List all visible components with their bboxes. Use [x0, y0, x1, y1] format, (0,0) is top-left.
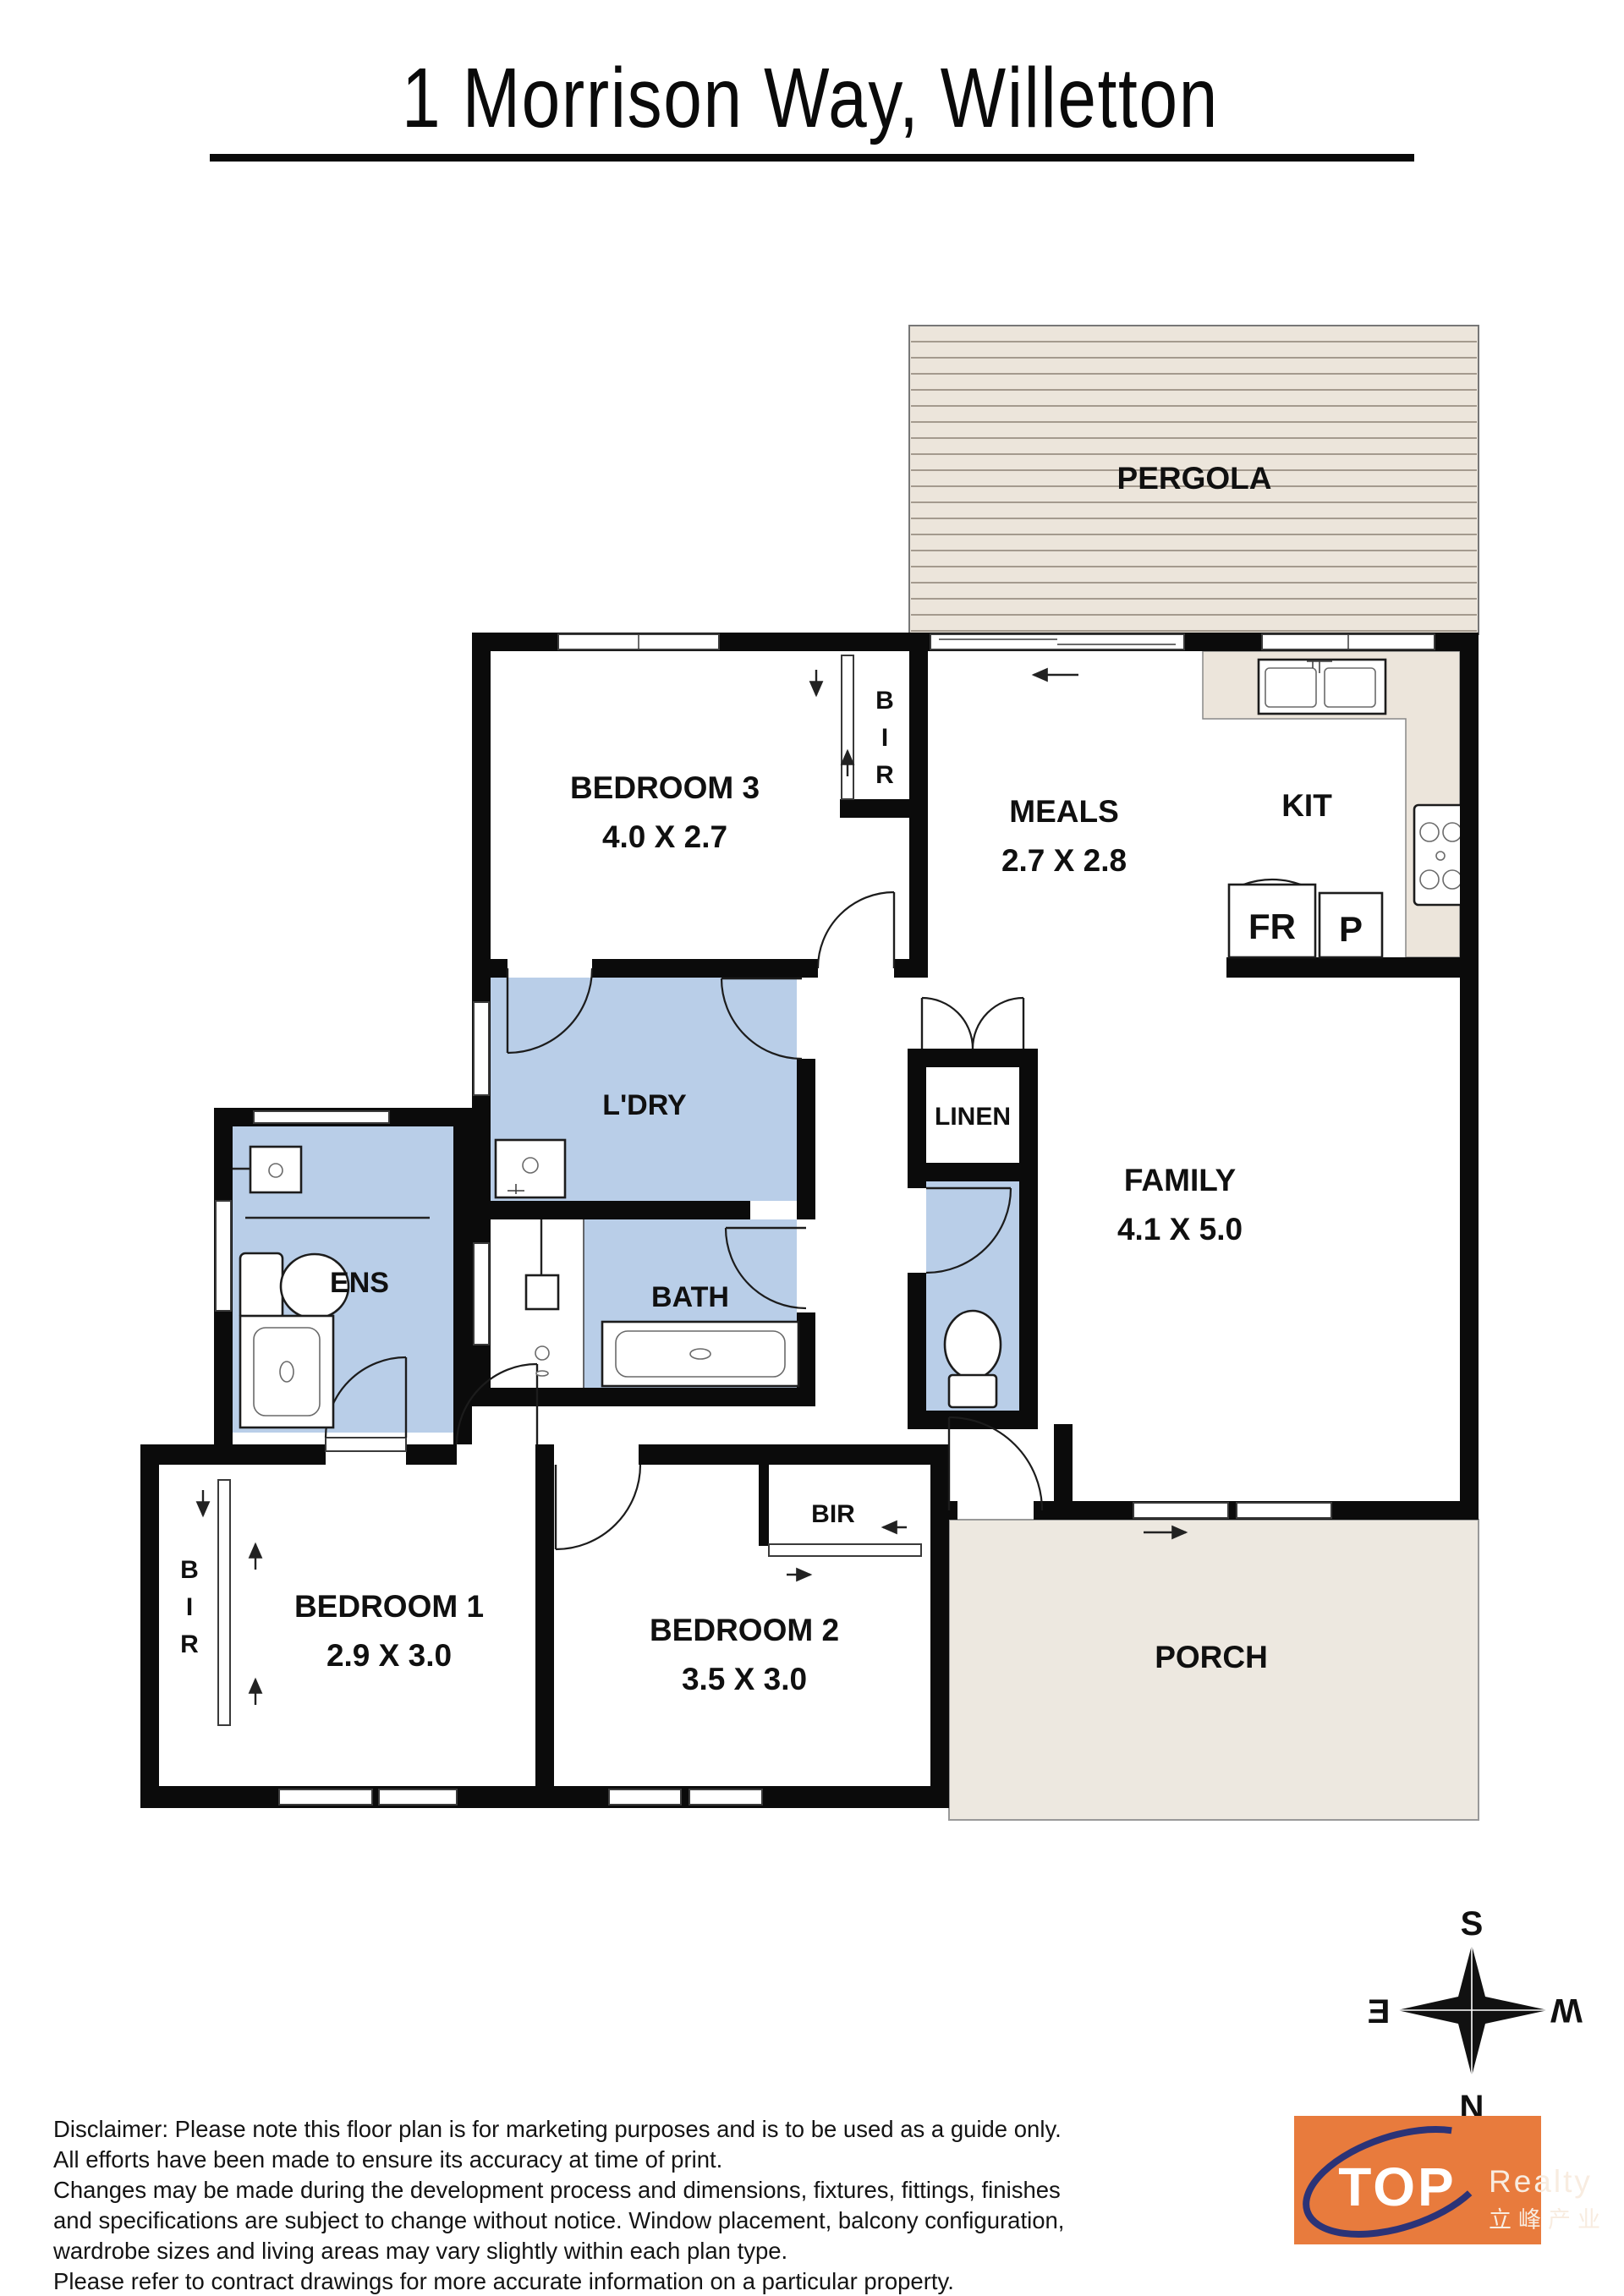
bir1-letter-i: I	[186, 1593, 193, 1621]
disclaimer-line: All efforts have been made to ensure its…	[53, 2146, 722, 2173]
bedroom2-label: BEDROOM 2	[650, 1613, 839, 1647]
bir3-letter-i: I	[881, 724, 888, 752]
fridge-box: FR	[1229, 879, 1315, 957]
title-underline	[210, 154, 1414, 162]
bedroom2-dims: 3.5 X 3.0	[682, 1662, 807, 1696]
disclaimer: Disclaimer: Please note this floor plan …	[52, 2116, 1064, 2294]
disclaimer-line: and specifications are subject to change…	[53, 2207, 1064, 2233]
ensuite-label: ENS	[330, 1267, 389, 1299]
wc-toilet-icon	[945, 1311, 1001, 1407]
disclaimer-line: Changes may be made during the developme…	[53, 2177, 1061, 2203]
sink-icon	[1259, 660, 1385, 714]
bir1-letter-b: B	[180, 1556, 199, 1584]
floor-plan-svg: 1 Morrison Way, Willetton PERGOLA	[0, 0, 1624, 2296]
logo-suffix: Realty	[1489, 2164, 1593, 2199]
cooktop-icon	[1414, 805, 1467, 905]
pantry-label: P	[1339, 909, 1363, 949]
shower-icon	[526, 1219, 584, 1388]
fridge-label: FR	[1248, 907, 1296, 946]
compass-west: W	[1550, 1992, 1583, 2029]
floorplan-page: 1 Morrison Way, Willetton PERGOLA	[0, 0, 1624, 2296]
meals-dims: 2.7 X 2.8	[1001, 843, 1127, 878]
page-title: 1 Morrison Way, Willetton	[402, 51, 1219, 145]
bedroom1-dims: 2.9 X 3.0	[326, 1638, 452, 1673]
meals-label: MEALS	[1009, 794, 1119, 829]
bedroom3-dims: 4.0 X 2.7	[602, 819, 727, 854]
logo-chinese: 立峰产业	[1489, 2207, 1607, 2233]
bathtub-icon	[602, 1322, 798, 1386]
linen-label: LINEN	[935, 1103, 1011, 1131]
disclaimer-line: Disclaimer: Please note this floor plan …	[53, 2116, 1062, 2142]
kitchen-label: KIT	[1281, 788, 1332, 823]
pantry-box: P	[1319, 893, 1382, 957]
bir1-letter-r: R	[180, 1630, 199, 1658]
compass-rose: S N E W	[1368, 1905, 1583, 2126]
pergola-area: PERGOLA	[909, 326, 1479, 634]
laundry-label: L'DRY	[602, 1089, 687, 1121]
laundry-tub-icon	[496, 1140, 565, 1197]
disclaimer-line: wardrobe sizes and living areas may vary…	[52, 2238, 787, 2264]
porch-label: PORCH	[1155, 1640, 1268, 1674]
logo-brand: TOP	[1338, 2156, 1456, 2217]
family-dims: 4.1 X 5.0	[1117, 1212, 1243, 1247]
compass-east: E	[1368, 1993, 1391, 2030]
disclaimer-line: Please refer to contract drawings for mo…	[53, 2268, 954, 2294]
family-label: FAMILY	[1124, 1163, 1237, 1197]
bir2-label: BIR	[811, 1500, 855, 1528]
agency-logo: TOP Realty 立峰产业	[1293, 2109, 1607, 2255]
compass-south: S	[1461, 1905, 1484, 1943]
bath-label: BATH	[651, 1281, 729, 1313]
bedroom1-label: BEDROOM 1	[294, 1589, 484, 1624]
bedroom3-label: BEDROOM 3	[570, 770, 760, 805]
pergola-label: PERGOLA	[1117, 461, 1272, 496]
bir3-letter-r: R	[875, 761, 894, 789]
ensuite-bathtub-icon	[240, 1316, 333, 1427]
header: 1 Morrison Way, Willetton	[210, 51, 1414, 162]
bir3-letter-b: B	[875, 687, 894, 715]
